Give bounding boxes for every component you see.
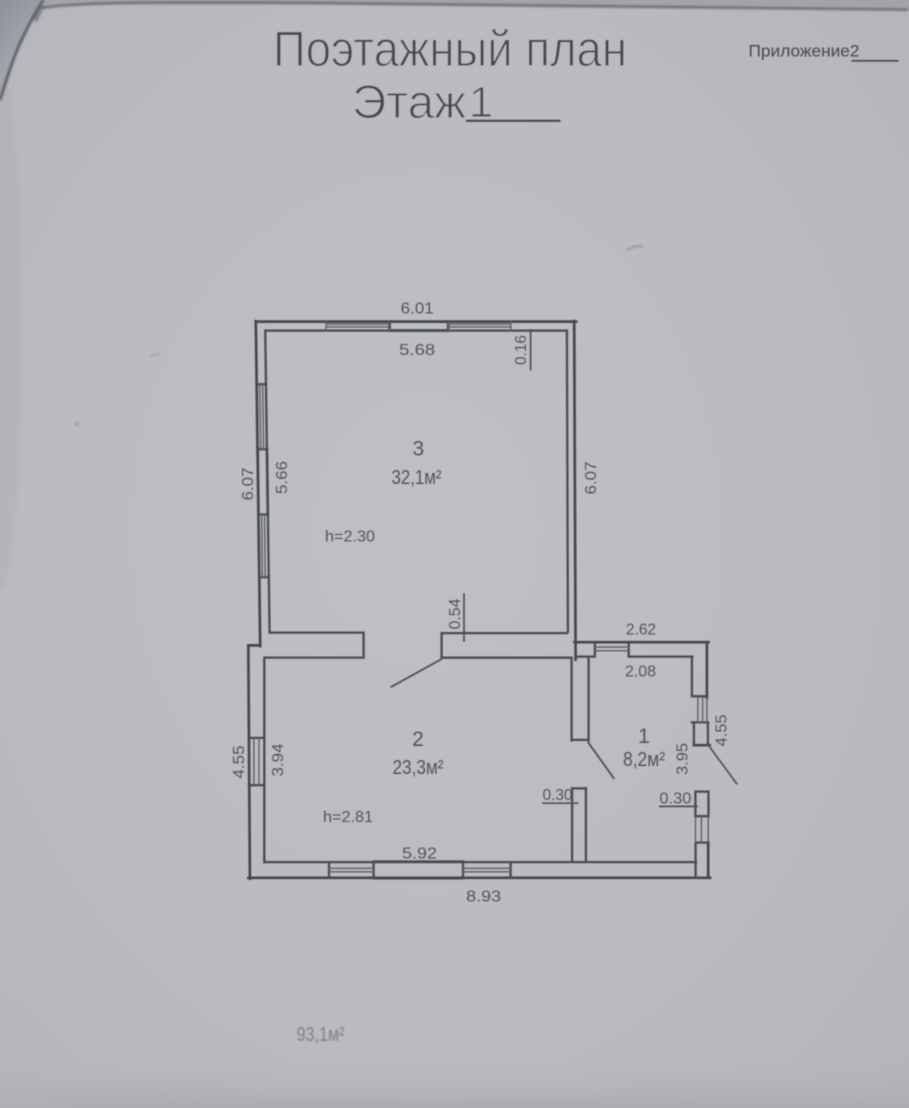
- svg-text:5.92: 5.92: [402, 846, 437, 863]
- svg-text:h=2.81: h=2.81: [323, 809, 373, 826]
- svg-text:0.30: 0.30: [659, 791, 691, 808]
- svg-text:23,3м²: 23,3м²: [393, 757, 444, 779]
- svg-text:2: 2: [412, 728, 424, 751]
- svg-text:Этаж: Этаж: [352, 75, 467, 128]
- svg-text:2.62: 2.62: [626, 622, 656, 639]
- svg-text:2.08: 2.08: [625, 664, 656, 681]
- svg-text:8,2м²: 8,2м²: [623, 749, 665, 771]
- svg-text:6.01: 6.01: [401, 301, 434, 318]
- svg-text:Приложение2: Приложение2: [749, 42, 860, 61]
- svg-text:32,1м²: 32,1м²: [392, 467, 442, 489]
- svg-text:5.68: 5.68: [399, 342, 435, 359]
- svg-text:4.55: 4.55: [713, 714, 730, 746]
- svg-text:8.93: 8.93: [466, 889, 501, 906]
- svg-text:93,1м²: 93,1м²: [297, 1024, 345, 1046]
- svg-text:0.16: 0.16: [513, 335, 530, 365]
- svg-text:h=2.30: h=2.30: [325, 529, 375, 546]
- svg-text:5.66: 5.66: [274, 461, 291, 494]
- svg-text:0.54: 0.54: [447, 598, 464, 629]
- svg-text:1: 1: [638, 725, 650, 748]
- svg-text:3.94: 3.94: [270, 743, 287, 776]
- svg-text:Поэтажный план: Поэтажный план: [273, 21, 627, 77]
- svg-text:3.95: 3.95: [675, 743, 692, 775]
- svg-text:1: 1: [469, 78, 493, 127]
- svg-text:6.07: 6.07: [583, 461, 600, 494]
- svg-text:0.30: 0.30: [543, 787, 573, 804]
- svg-text:6.07: 6.07: [240, 467, 257, 500]
- svg-text:4.55: 4.55: [231, 745, 248, 778]
- svg-text:3: 3: [412, 438, 424, 461]
